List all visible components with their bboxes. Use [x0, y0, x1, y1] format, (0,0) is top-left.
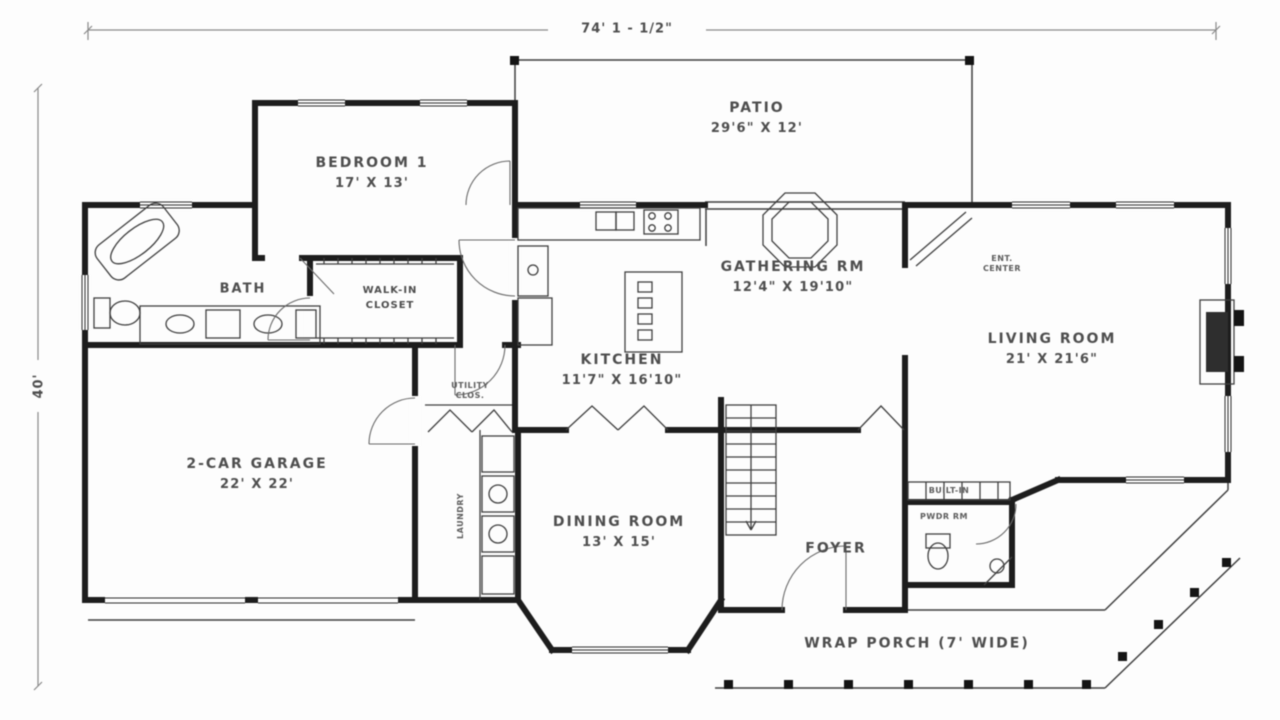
- room-label-foyer: FOYER: [805, 539, 866, 560]
- room-name: GATHERING RM: [721, 257, 866, 278]
- room-dims: 22' X 22': [186, 475, 327, 495]
- room-dims: 29'6" X 12': [711, 119, 803, 139]
- room-label-wrap-porch: WRAP PORCH (7' WIDE): [804, 634, 1030, 655]
- room-name: DINING ROOM: [553, 512, 685, 533]
- room-dims: 21' X 21'6": [988, 350, 1117, 370]
- room-dims: 11'7" X 16'10": [562, 371, 683, 391]
- room-label-patio: PATIO 29'6" X 12': [711, 98, 803, 139]
- label-line: LAUNDRY: [456, 493, 466, 539]
- room-name: LIVING ROOM: [988, 329, 1117, 350]
- floor-plan: 74' 1 - 1/2" 40' PATIO 29'6" X 12' BEDRO…: [0, 0, 1280, 720]
- room-label-kitchen: KITCHEN 11'7" X 16'10": [562, 350, 683, 391]
- room-name: PATIO: [711, 98, 803, 119]
- label-line: CLOS.: [451, 391, 489, 401]
- room-label-living: LIVING ROOM 21' X 21'6": [988, 329, 1117, 370]
- label-utility-closet: UTILITY CLOS.: [451, 381, 489, 401]
- label-built-in: BUILT-IN: [929, 486, 970, 496]
- room-label-gathering: GATHERING RM 12'4" X 19'10": [721, 257, 866, 298]
- label-ent-center: ENT. CENTER: [983, 254, 1021, 274]
- toilet-icon: [94, 298, 140, 328]
- room-label-walkin-closet: WALK-IN CLOSET: [363, 283, 418, 313]
- overall-width-value: 74' 1 - 1/2": [581, 21, 673, 36]
- room-name: BATH: [220, 279, 267, 299]
- overall-depth-value: 40': [31, 373, 46, 398]
- vanity-icon: [140, 306, 320, 344]
- overall-width-dimension: 74' 1 - 1/2": [581, 19, 673, 39]
- room-label-dining: DINING ROOM 13' X 15': [553, 512, 685, 553]
- label-laundry: LAUNDRY: [456, 493, 466, 539]
- kitchen-counter: [518, 208, 700, 345]
- washer-dryer-icon: [482, 436, 514, 594]
- label-line: CENTER: [983, 264, 1021, 274]
- kitchen-island: [625, 272, 682, 352]
- label-line: UTILITY: [451, 381, 489, 391]
- label-line: BUILT-IN: [929, 486, 970, 496]
- room-label-garage: 2-CAR GARAGE 22' X 22': [186, 454, 327, 495]
- staircase: [726, 405, 776, 535]
- label-line: ENT.: [983, 254, 1021, 264]
- room-name: WALK-IN: [363, 283, 418, 298]
- room-label-bath: BATH: [220, 279, 267, 299]
- room-name: FOYER: [805, 539, 866, 560]
- room-name: BEDROOM 1: [316, 153, 429, 174]
- label-powder-room: PWDR RM: [920, 512, 968, 522]
- fireplace-icon: [1200, 300, 1244, 384]
- overall-depth-dimension: 40': [29, 373, 49, 398]
- room-name: 2-CAR GARAGE: [186, 454, 327, 475]
- room-dims: 17' X 13': [316, 174, 429, 194]
- room-label-bedroom1: BEDROOM 1 17' X 13': [316, 153, 429, 194]
- room-name: CLOSET: [363, 298, 418, 313]
- label-line: PWDR RM: [920, 512, 968, 522]
- room-name: WRAP PORCH (7' WIDE): [804, 634, 1030, 655]
- powder-room-fixtures: [926, 534, 1012, 585]
- bathtub-icon: [91, 199, 183, 284]
- room-dims: 13' X 15': [553, 533, 685, 553]
- floor-plan-page: 74' 1 - 1/2" 40' PATIO 29'6" X 12' BEDRO…: [0, 0, 1280, 720]
- room-name: KITCHEN: [562, 350, 683, 371]
- room-dims: 12'4" X 19'10": [721, 278, 866, 298]
